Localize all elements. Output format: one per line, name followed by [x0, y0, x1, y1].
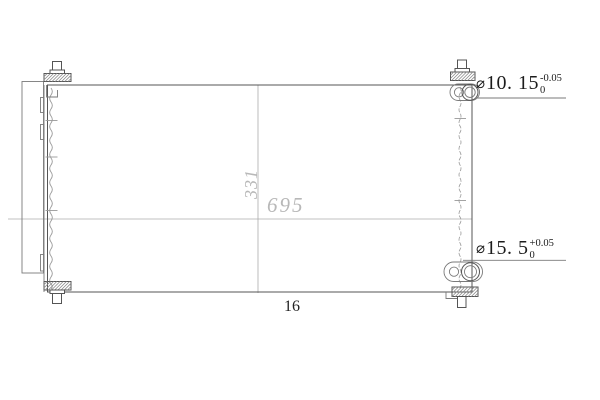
port-fitting-bottom	[444, 262, 483, 282]
port-bottom-annotation: ⌀ 15. 5 +0.05 0	[476, 237, 554, 261]
mount-bottom-right	[446, 287, 478, 308]
diameter-symbol: ⌀	[476, 76, 485, 91]
port-bottom-value: 15. 5	[486, 237, 529, 259]
upper-tolerance: +0.05	[530, 238, 554, 249]
drier-tube-hidden-line	[459, 87, 461, 288]
port-top-value: 10. 15	[486, 72, 539, 94]
dim-depth-label: 16	[270, 298, 314, 316]
lower-tolerance: 0	[540, 85, 562, 96]
fin-wave-left	[50, 88, 53, 289]
dim-width-label: 695	[267, 193, 305, 218]
port-bottom-tolerance: +0.05 0	[530, 238, 554, 261]
condenser-technical-drawing: 331 695 16 ⌀ 10. 15 -0.05 0 ⌀ 15. 5 +0.0…	[0, 0, 600, 400]
diameter-symbol: ⌀	[476, 241, 485, 256]
mount-top-left	[44, 62, 71, 98]
lower-tolerance: 0	[530, 250, 554, 261]
mount-top-right	[451, 60, 476, 81]
port-top-annotation: ⌀ 10. 15 -0.05 0	[476, 72, 562, 96]
upper-tolerance: -0.05	[540, 73, 562, 84]
port-top-tolerance: -0.05 0	[540, 73, 562, 96]
